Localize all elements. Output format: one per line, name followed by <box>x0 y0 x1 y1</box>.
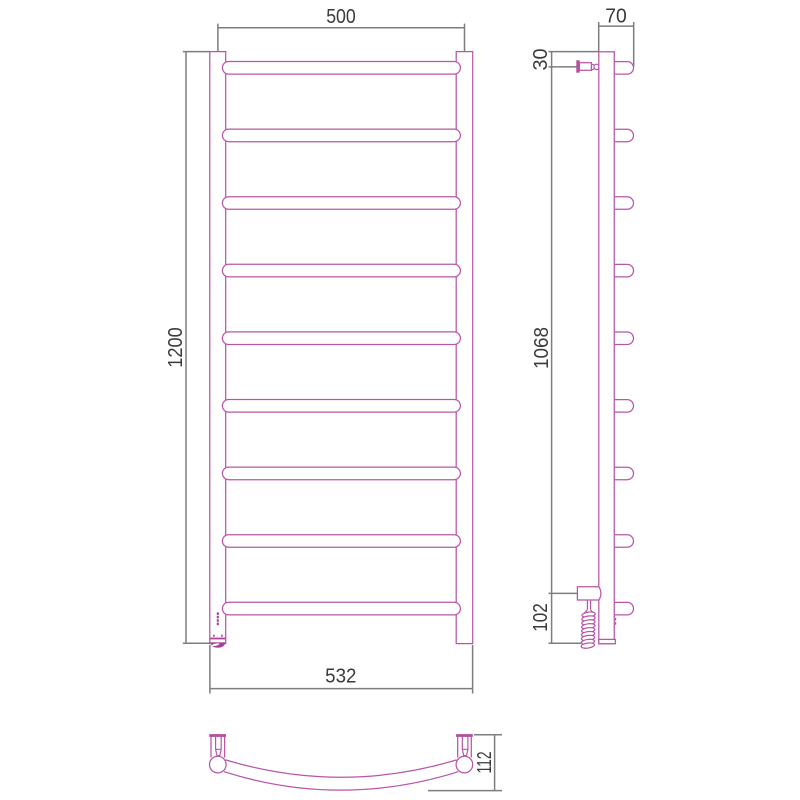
svg-text:102: 102 <box>530 603 552 632</box>
svg-text:1068: 1068 <box>531 327 553 369</box>
svg-text:112: 112 <box>474 752 496 774</box>
svg-text:70: 70 <box>605 6 627 28</box>
svg-text:1200: 1200 <box>165 327 187 368</box>
svg-text:30: 30 <box>530 49 552 71</box>
svg-text:532: 532 <box>325 665 356 687</box>
svg-text:500: 500 <box>326 6 356 28</box>
